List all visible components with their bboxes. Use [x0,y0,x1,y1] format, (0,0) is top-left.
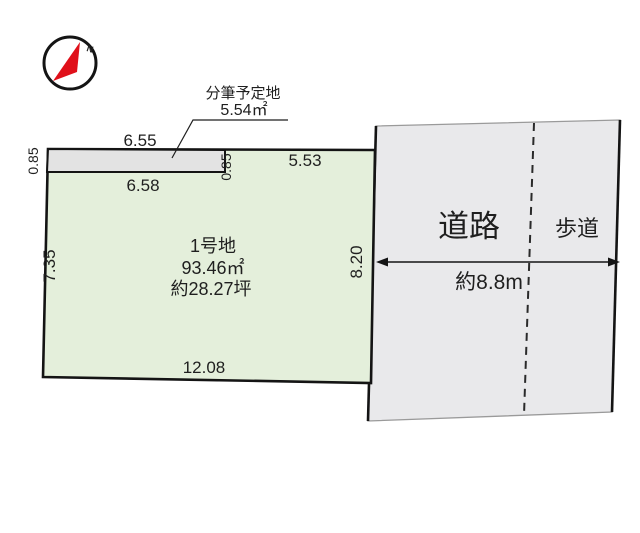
plot-dim-right: 8.20 [347,245,366,278]
subdivision-strip [47,149,225,172]
strip-dim-left: 0.85 [25,147,41,174]
plot-dim-bottom: 12.08 [183,358,226,377]
plot-dim-top: 5.53 [288,151,321,170]
sidewalk-label: 歩道 [555,216,599,241]
subdivision-label: 分筆予定地 [205,85,280,102]
strip-dim-top: 6.55 [123,131,156,150]
land-plot-diagram: 分筆予定地 5.54㎡ 6.55 0.85 0.85 6.58 5.53 7.3… [0,0,640,533]
strip-dim-right: 0.85 [218,153,234,180]
plot-area-tsubo: 約28.27坪 [170,279,251,299]
compass-north-icon: N [44,37,96,89]
subdivision-area: 5.54㎡ [220,101,267,119]
diagram-svg: 分筆予定地 5.54㎡ 6.55 0.85 0.85 6.58 5.53 7.3… [0,0,640,533]
road-label: 道路 [438,209,500,244]
road-width-label: 約8.8m [455,271,523,294]
plot-area-m2: 93.46㎡ [181,257,244,278]
plot-dim-left: 7.35 [40,249,59,282]
plot-name: 1号地 [190,236,236,256]
strip-dim-bottom: 6.58 [126,176,159,195]
